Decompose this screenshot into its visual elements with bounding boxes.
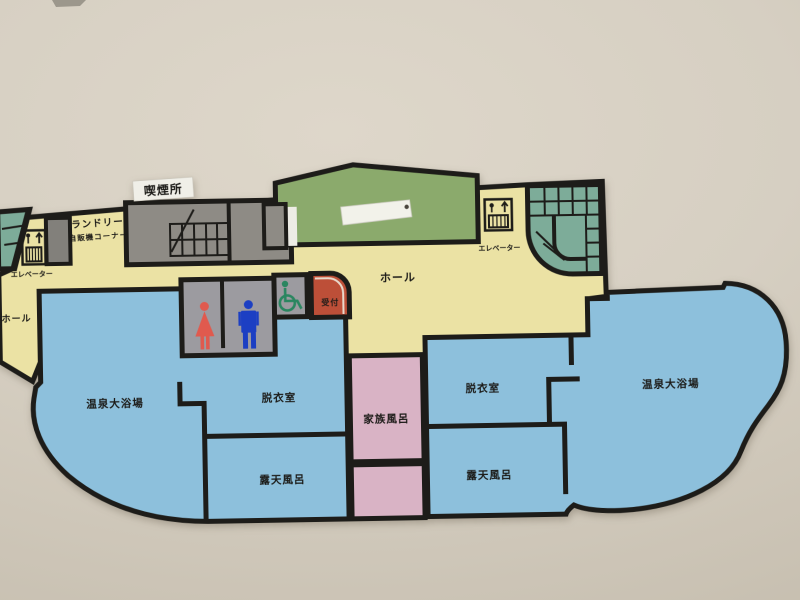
label-hall-center: ホール	[380, 271, 416, 285]
entrance-side-room	[264, 204, 287, 248]
spiral-stairs-right	[527, 184, 602, 274]
label-dressing-room-left: 脱衣室	[262, 391, 297, 405]
label-dressing-room-right: 脱衣室	[465, 381, 500, 395]
label-open-air-bath-left: 露天風呂	[259, 473, 305, 487]
label-open-air-bath-right: 露天風呂	[466, 468, 512, 482]
label-smoking-area: 喫煙所	[143, 181, 183, 199]
utility-room	[46, 218, 71, 264]
dressing-room-right-stub	[571, 335, 572, 365]
label-elevator-right: エレベーター	[478, 243, 520, 253]
label-elevator-left: エレベーター	[11, 269, 53, 279]
smoking-area-sign: 喫煙所	[133, 177, 194, 201]
floor-plan: 受付 喫煙所 ランドリー 自販機コーナー エレベーター エレベーター ホール ホ…	[0, 157, 789, 525]
label-family-bath: 家族風呂	[363, 412, 409, 426]
family-bath-area	[349, 355, 424, 462]
family-bath-area-2	[351, 464, 425, 519]
photo-artifact	[52, 0, 86, 7]
accessible-toilet	[274, 275, 308, 318]
floor-plan-photo: 受付 喫煙所 ランドリー 自販機コーナー エレベーター エレベーター ホール ホ…	[0, 0, 800, 600]
label-hall-left: ホール	[1, 313, 31, 325]
open-air-left-wall	[205, 436, 206, 521]
entrance-opening	[288, 207, 298, 246]
restroom-block	[181, 278, 275, 356]
label-reception: 受付	[321, 297, 339, 307]
label-main-bath-right: 温泉大浴場	[642, 377, 700, 391]
label-main-bath-left: 温泉大浴場	[86, 396, 144, 410]
entrance-area	[263, 163, 478, 249]
reception-desk: 受付	[311, 273, 350, 318]
